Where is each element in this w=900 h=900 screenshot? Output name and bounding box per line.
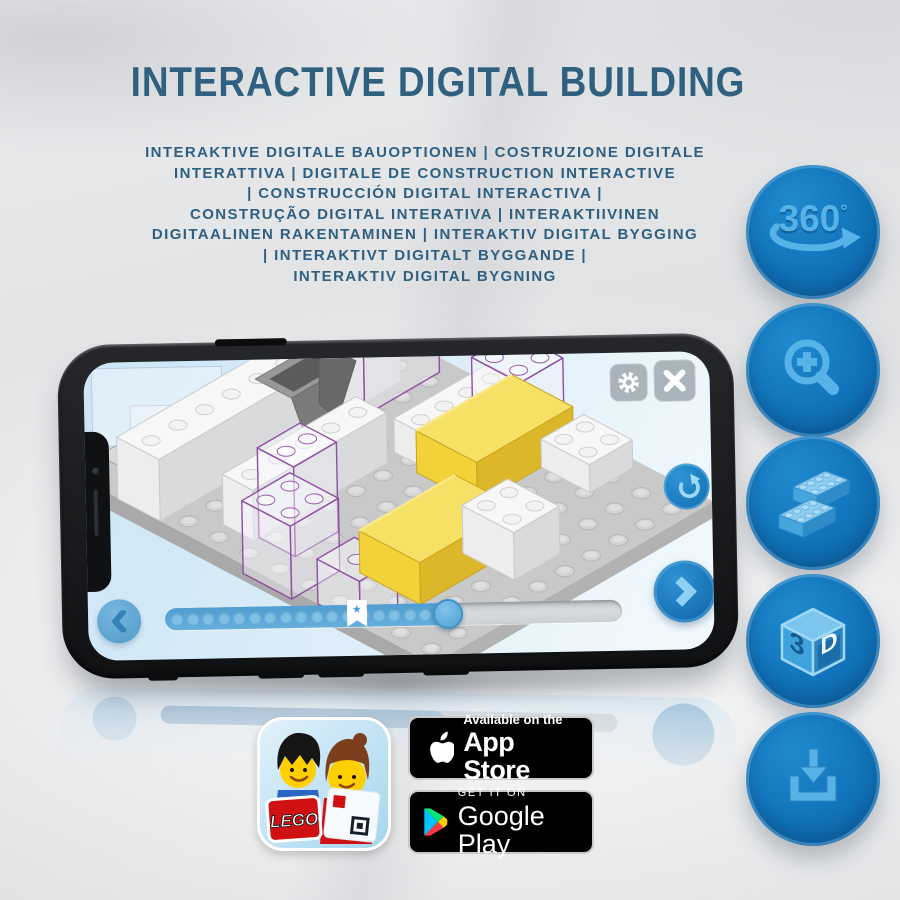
feature-3d-button[interactable]: 3 D: [746, 574, 880, 708]
star-icon: ★: [352, 604, 362, 616]
slider-thumb[interactable]: [433, 599, 464, 630]
3d-cube-icon: 3 D: [771, 599, 855, 683]
phone-mockup: ★: [57, 333, 739, 680]
phone-side-button: [423, 668, 469, 676]
camera-icon: [92, 468, 99, 475]
apple-icon: [420, 727, 454, 769]
phone-side-button: [148, 673, 178, 681]
rotate-arrow-icon: [671, 471, 702, 502]
speaker-slot: [94, 490, 99, 536]
page-title: INTERACTIVE DIGITAL BUILDING: [42, 58, 834, 106]
subtitle-line: INTERAKTIV DIGITAL BYGNING: [30, 267, 820, 288]
lego-app-artwork: LEGO: [260, 720, 388, 848]
subtitle-line: | INTERAKTIVT DIGITALT BYGGANDE |: [30, 246, 820, 267]
subtitle-line: DIGITAALINEN RAKENTAMINEN | INTERAKTIV D…: [30, 225, 820, 246]
phone-side-button: [318, 670, 364, 678]
close-button[interactable]: [653, 359, 696, 402]
close-icon: [662, 368, 686, 392]
download-icon: [771, 737, 855, 821]
feature-bricks-button[interactable]: [746, 436, 880, 570]
lego-app-icon[interactable]: LEGO: [257, 717, 391, 851]
phone-power-button: [215, 338, 287, 346]
lego-bricks-icon: [771, 461, 855, 545]
phone-reflection: [59, 686, 737, 817]
google-play-tagline: GET IT ON: [458, 786, 582, 801]
google-play-badge[interactable]: GET IT ON Google Play: [408, 790, 594, 854]
subtitle-line: | CONSTRUCCIÓN DIGITAL INTERACTIVA |: [30, 184, 820, 205]
subtitle-translations: INTERAKTIVE DIGITALE BAUOPTIONEN | COSTR…: [30, 143, 820, 287]
gear-icon: [615, 369, 641, 395]
app-store-name: App Store: [463, 728, 582, 784]
google-play-icon: [420, 803, 449, 841]
subtitle-line: CONSTRUÇÃO DIGITAL INTERATIVA | INTERAKT…: [30, 205, 820, 226]
chevron-right-icon: [672, 576, 697, 606]
next-step-button[interactable]: [653, 560, 715, 623]
app-screen: ★: [83, 351, 715, 661]
svg-text:LEGO: LEGO: [269, 809, 318, 831]
google-play-name: Google Play: [458, 802, 582, 858]
subtitle-line: INTERAKTIVE DIGITALE BAUOPTIONEN | COSTR…: [30, 143, 820, 164]
magnifier-plus-icon: [772, 329, 854, 411]
app-store-tagline: Available on the: [463, 712, 582, 727]
chevron-left-icon: [110, 610, 128, 632]
feature-download-button[interactable]: [746, 712, 880, 846]
subtitle-line: INTERATTIVA | DIGITALE DE CONSTRUCTION I…: [30, 164, 820, 185]
phone-side-button: [258, 671, 304, 679]
phone-notch: [83, 432, 111, 593]
feature-zoom-button[interactable]: [746, 303, 880, 437]
app-store-badge[interactable]: Available on the App Store: [408, 716, 594, 780]
settings-button[interactable]: [609, 363, 648, 402]
